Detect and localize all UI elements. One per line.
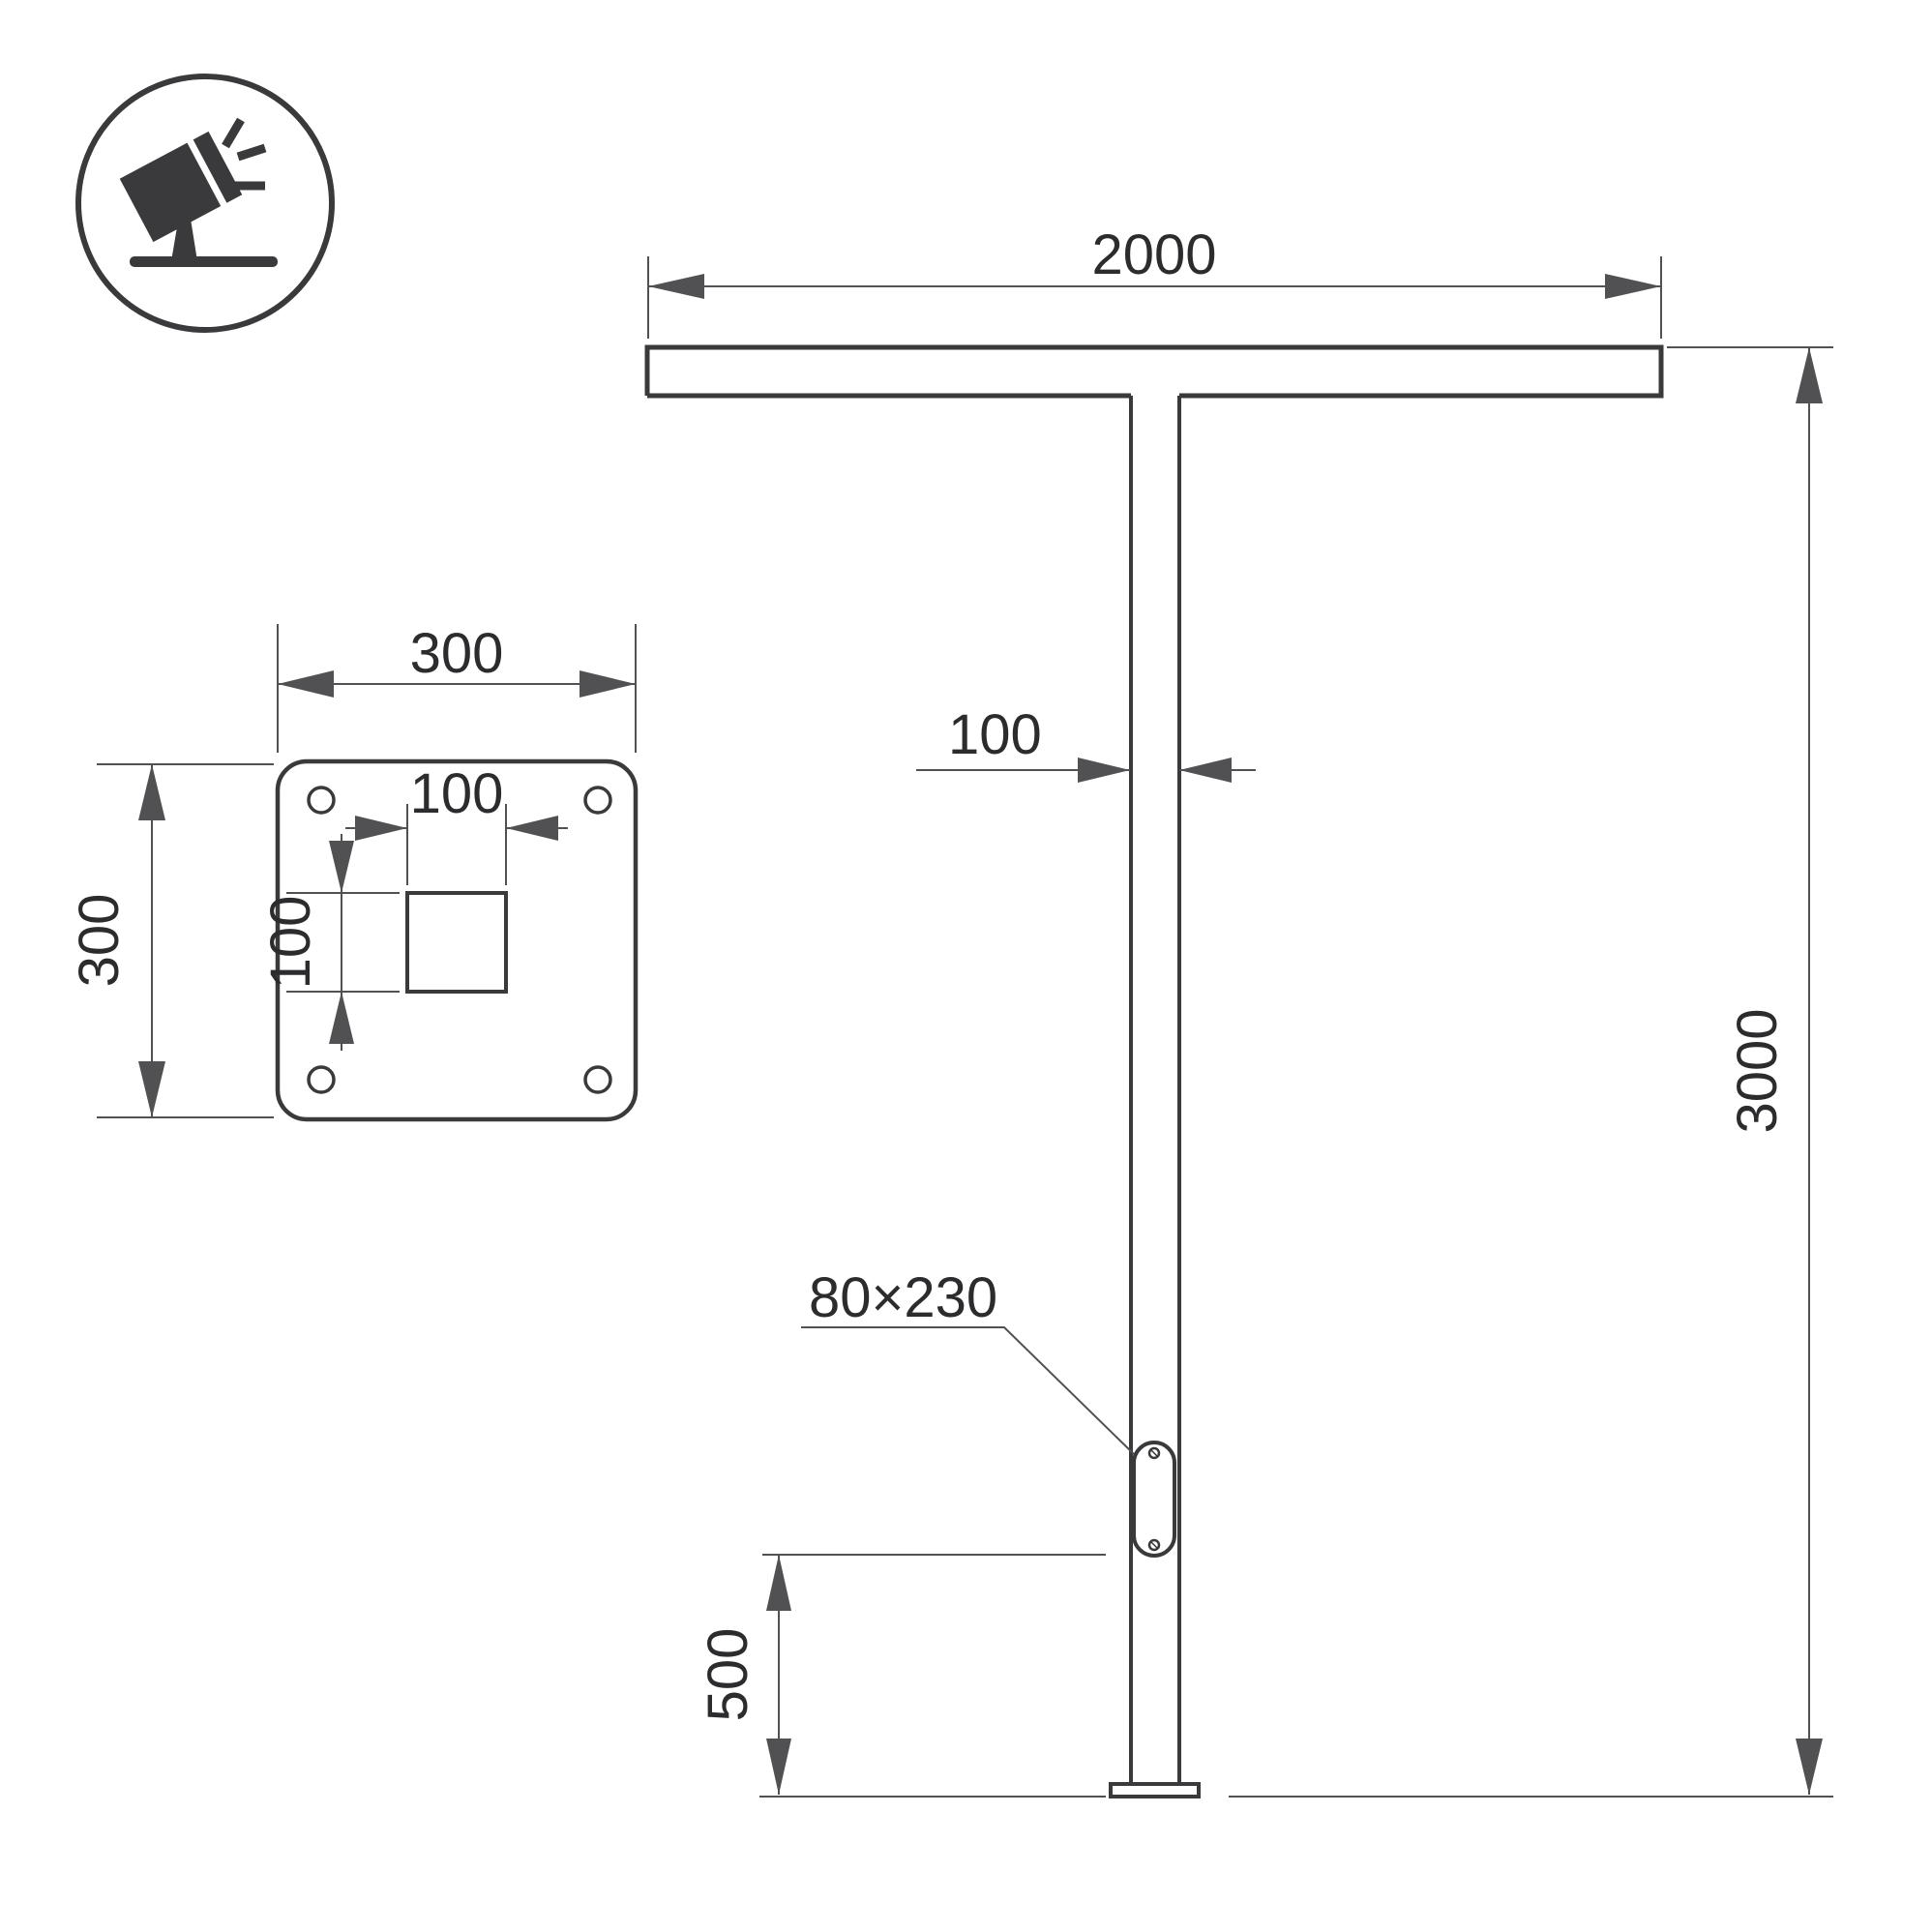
dim-plate-width: 300 xyxy=(278,622,636,753)
bolt-hole-bottom-left xyxy=(309,1067,334,1092)
base-plate-view: 300 300 100 100 xyxy=(68,622,636,1119)
hatch-leader-line xyxy=(801,1327,1134,1454)
front-view: 2000 3000 100 80×230 xyxy=(647,223,1833,1797)
bolt-hole-top-left xyxy=(309,788,334,813)
service-hatch-oval xyxy=(1134,1442,1174,1556)
pole-width-label: 100 xyxy=(948,703,1042,766)
hatch-size-label: 80×230 xyxy=(809,1266,997,1329)
dim-height: 3000 xyxy=(1667,347,1833,1795)
bolt-hole-top-right xyxy=(585,788,610,813)
floodlight-base-bar xyxy=(130,256,278,267)
dim-span: 2000 xyxy=(648,223,1661,339)
crossbar-outline xyxy=(647,347,1661,396)
span-label: 2000 xyxy=(1091,223,1216,286)
plate-width-label: 300 xyxy=(410,622,504,685)
tilted-floodlight-icon xyxy=(78,76,332,330)
pole-base-plate xyxy=(1111,1784,1199,1797)
height-label: 3000 xyxy=(1726,1008,1789,1133)
technical-drawing: 300 300 100 100 xyxy=(0,0,1932,1932)
pole-cutout-square xyxy=(407,893,506,992)
dim-pole-width: 100 xyxy=(916,703,1256,783)
dim-hatch-offset: 500 xyxy=(697,1555,1106,1795)
plate-height-label: 300 xyxy=(68,894,131,988)
dim-cutout-width: 100 xyxy=(345,762,568,885)
bolt-hole-bottom-right xyxy=(585,1067,610,1092)
dim-cutout-height: 100 xyxy=(259,834,400,1051)
cutout-width-label: 100 xyxy=(410,762,504,825)
dim-plate-height: 300 xyxy=(68,764,274,1117)
hatch-offset-label: 500 xyxy=(697,1628,759,1722)
hatch-callout: 80×230 xyxy=(801,1266,1134,1454)
cutout-height-label: 100 xyxy=(259,896,322,990)
